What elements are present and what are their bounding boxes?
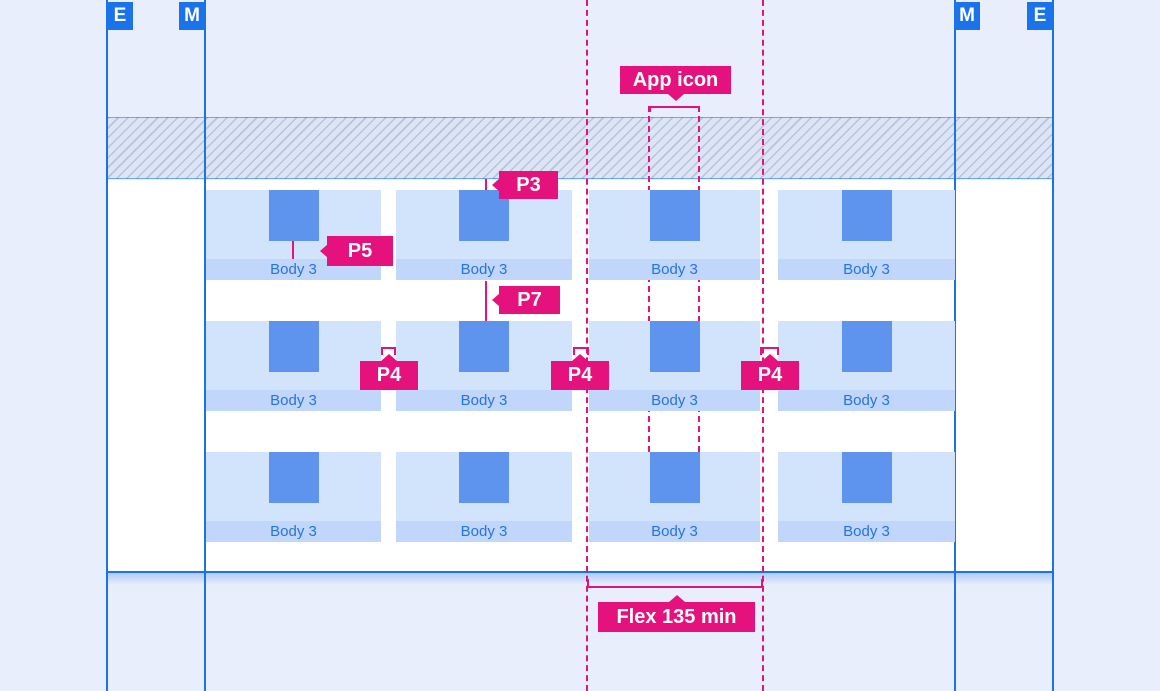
p3-callout: P3 <box>499 171 558 199</box>
app-cell: Body 3 <box>396 321 572 411</box>
app-icon-placeholder <box>650 452 700 503</box>
callout-tail-left <box>320 244 328 258</box>
cell-caption: Body 3 <box>778 521 955 542</box>
cell-caption: Body 3 <box>206 390 381 411</box>
app-icon-callout: App icon <box>620 66 731 94</box>
app-cell: Body 3 <box>778 321 955 411</box>
p7-callout-text: P7 <box>517 289 541 311</box>
p4-left-callout: P4 <box>360 361 418 390</box>
marker-e-right: E <box>1027 2 1053 30</box>
marker-m-right: M <box>954 2 980 30</box>
cell-caption: Body 3 <box>589 390 760 411</box>
app-cell: Body 3 <box>206 321 381 411</box>
p5-measure-line <box>292 241 294 259</box>
flex-width-bracket <box>587 586 763 588</box>
app-icon-bracket-tick <box>649 106 651 112</box>
app-icon-placeholder <box>842 190 892 241</box>
callout-tail-left <box>492 178 500 192</box>
flex-min-callout: Flex 135 min <box>598 602 755 632</box>
app-icon-width-bracket <box>649 106 700 108</box>
app-icon-placeholder <box>269 321 319 372</box>
callout-tail-up <box>572 354 588 361</box>
cell-caption: Body 3 <box>396 521 572 542</box>
app-cell: Body 3 <box>589 321 760 411</box>
app-cell: Body 3 <box>396 452 572 542</box>
cell-caption: Body 3 <box>589 521 760 542</box>
marker-m-left: M <box>179 2 205 30</box>
p3-callout-text: P3 <box>516 174 540 196</box>
app-icon-placeholder <box>842 321 892 372</box>
app-cell: Body 3 <box>778 190 955 280</box>
p5-callout-text: P5 <box>348 240 372 262</box>
cell-caption: Body 3 <box>206 521 381 542</box>
p5-callout: P5 <box>327 236 393 266</box>
callout-tail-up <box>669 595 685 602</box>
app-icon-callout-text: App icon <box>633 69 719 91</box>
callout-tail-down <box>668 94 684 101</box>
keyline-e-right <box>1052 0 1054 691</box>
cell-caption: Body 3 <box>396 259 572 280</box>
app-cell: Body 3 <box>589 190 760 280</box>
p4-right-callout: P4 <box>741 361 799 390</box>
marker-e-left: E <box>107 2 133 30</box>
p4-middle-callout-text: P4 <box>568 364 592 386</box>
flex-bracket-tick <box>587 579 589 588</box>
p4-right-callout-text: P4 <box>758 364 782 386</box>
cell-caption: Body 3 <box>589 259 760 280</box>
app-cell: Body 3 <box>778 452 955 542</box>
callout-tail-up <box>381 354 397 361</box>
p4-left-callout-text: P4 <box>377 364 401 386</box>
app-cell: Body 3 <box>396 190 572 280</box>
app-cell: Body 3 <box>589 452 760 542</box>
hatched-app-bar-region <box>107 117 1053 179</box>
content-bottom-shadow <box>107 573 1053 585</box>
app-icon-bracket-tick <box>698 106 700 112</box>
app-icon-placeholder <box>842 452 892 503</box>
app-cell: Body 3 <box>206 190 381 280</box>
app-icon-placeholder <box>650 321 700 372</box>
cell-caption: Body 3 <box>778 390 955 411</box>
cell-caption: Body 3 <box>396 390 572 411</box>
p4-middle-callout: P4 <box>551 361 609 390</box>
app-icon-placeholder <box>650 190 700 241</box>
flex-min-callout-text: Flex 135 min <box>616 606 736 628</box>
p7-callout: P7 <box>499 286 560 314</box>
p7-measure-line <box>485 281 487 321</box>
cell-caption: Body 3 <box>778 259 955 280</box>
callout-tail-up <box>762 354 778 361</box>
app-icon-placeholder <box>459 321 509 372</box>
flex-bracket-tick <box>761 579 763 588</box>
callout-tail-left <box>492 293 500 307</box>
app-icon-placeholder <box>269 190 319 241</box>
app-cell: Body 3 <box>206 452 381 542</box>
p3-measure-line <box>485 179 487 190</box>
app-icon-placeholder <box>459 452 509 503</box>
app-icon-placeholder <box>269 452 319 503</box>
layout-spec-canvas: E M M E Body 3 Body 3 Body 3 Body 3 Body… <box>0 0 1160 691</box>
keyline-e-left <box>106 0 108 691</box>
